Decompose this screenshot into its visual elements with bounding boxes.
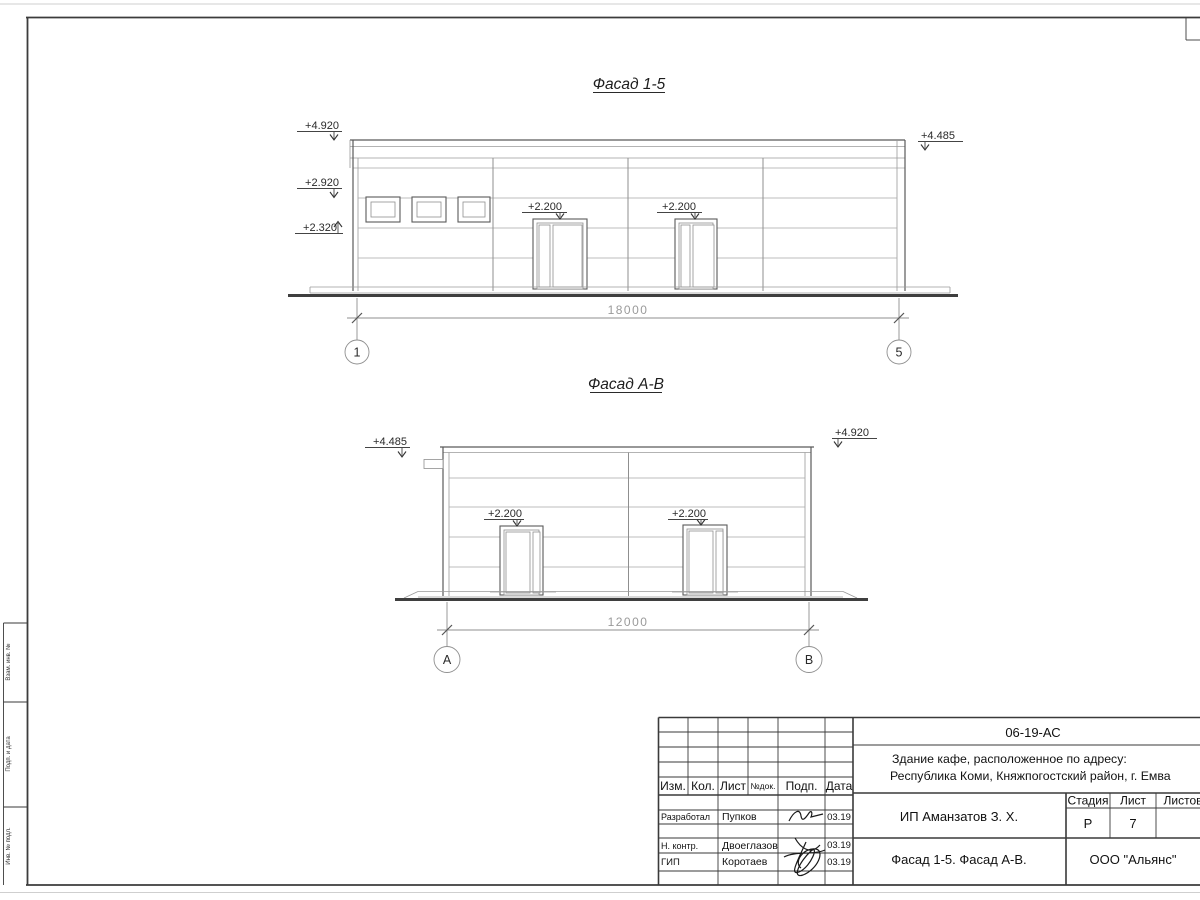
facade-a-b-title: Фасад А-В [588, 376, 664, 393]
dimension-label: 12000 [608, 615, 649, 629]
elevation-mark-2200-door1: +2.200 [522, 201, 567, 219]
client-name: ИП Аманзатов З. Х. [900, 809, 1018, 824]
window-1 [366, 197, 400, 222]
signature-2 [784, 838, 825, 876]
signer-date-3: 03.19 [827, 857, 851, 868]
rev-header-data: Дата [826, 779, 853, 793]
drawing-sheet: Взам. инв. № Подп. и дата Инв. № подл. Ф… [0, 0, 1200, 900]
elevation-label: +2.920 [305, 177, 339, 189]
elevation-label: +4.920 [835, 427, 869, 439]
elevation-label: +2.200 [672, 508, 706, 520]
elevation-mark-4920: +4.920 [832, 427, 877, 447]
title-block: Изм. Кол. Лист №док. Подп. Дата Разработ… [659, 718, 1200, 886]
elevation-mark-4485: +4.485 [365, 436, 410, 457]
window-2 [412, 197, 446, 222]
corner-stamp-cell [1186, 18, 1200, 40]
grid-label-1: 1 [354, 346, 361, 360]
signer-role-2: Н. контр. [661, 841, 698, 851]
elevation-label: +4.920 [305, 120, 339, 132]
signer-role-3: ГИП [661, 857, 680, 868]
rev-header-podp: Подп. [786, 779, 818, 793]
rev-header-kol: Кол. [691, 779, 715, 793]
side-strip: Взам. инв. № Подп. и дата Инв. № подл. [4, 623, 28, 885]
door-2 [675, 219, 717, 289]
door-1 [500, 526, 543, 595]
cad-canvas: Взам. инв. № Подп. и дата Инв. № подл. Ф… [0, 0, 1200, 900]
grid-label-5: 5 [896, 346, 903, 360]
stage-value: Р [1084, 816, 1093, 831]
facade-1-5-title: Фасад 1-5 [593, 76, 666, 93]
door-2 [683, 525, 727, 595]
elevation-mark-2200-door2: +2.200 [657, 201, 702, 219]
dimension-label: 18000 [608, 303, 649, 317]
facade-a-b-drawing: Фасад А-В [365, 376, 877, 673]
door-1 [533, 219, 587, 289]
elevation-label: +4.485 [373, 436, 407, 448]
dimension-18000: 18000 [347, 298, 909, 340]
grid-bubble-5: 5 [887, 340, 911, 364]
sheet-number: 7 [1129, 816, 1136, 831]
side-strip-label-2: Подп. и дата [6, 736, 12, 772]
project-address-line1: Здание кафе, расположенное по адресу: [892, 752, 1127, 766]
signer-name-2: Двоеглазов [722, 840, 778, 852]
rev-header-izm: Изм. [660, 779, 686, 793]
grid-bubble-b: В [796, 647, 822, 673]
elevation-label: +2.320 [303, 222, 337, 234]
elevation-mark-2200-door1: +2.200 [484, 508, 524, 526]
sheet-label: Лист [1120, 794, 1147, 808]
grid-bubble-a: А [434, 647, 460, 673]
elevation-label: +4.485 [921, 130, 955, 142]
elevation-mark-4485: +4.485 [918, 130, 963, 150]
grid-label-a: А [443, 653, 452, 667]
elevation-mark-4920: +4.920 [297, 120, 342, 140]
side-strip-label-1: Взам. инв. № [5, 643, 12, 680]
signer-name-1: Пупков [722, 811, 757, 823]
elevation-label: +2.200 [528, 201, 562, 213]
company-name: ООО "Альянс" [1090, 852, 1177, 867]
elevation-label: +2.200 [488, 508, 522, 520]
project-address-line2: Республика Коми, Княжпогостский район, г… [890, 769, 1171, 783]
grid-label-b: В [805, 653, 813, 667]
elevation-mark-2920: +2.920 [297, 177, 342, 198]
facade-1-5-drawing: Фасад 1-5 [288, 76, 963, 364]
elevation-mark-2200-door2: +2.200 [668, 508, 708, 525]
stage-label: Стадия [1068, 794, 1109, 808]
signature-1 [789, 811, 823, 821]
rev-header-list: Лист [720, 779, 747, 793]
sheets-label: Листов [1164, 794, 1200, 808]
signer-date-1: 03.19 [827, 812, 851, 823]
elevation-mark-2320: +2.320 [295, 222, 343, 235]
signer-name-3: Коротаев [722, 856, 768, 868]
doc-number: 06-19-АС [1005, 725, 1060, 740]
grid-bubble-1: 1 [345, 340, 369, 364]
elevation-label: +2.200 [662, 201, 696, 213]
side-strip-label-3: Инв. № подл. [5, 827, 12, 865]
signer-date-2: 03.19 [827, 840, 851, 851]
wall-protrusion [424, 460, 443, 469]
drawing-title: Фасад 1-5. Фасад А-В. [891, 852, 1026, 867]
window-3 [458, 197, 490, 222]
rev-header-ndoc: №док. [751, 781, 776, 791]
signer-role-1: Разработал [661, 812, 710, 822]
dimension-12000: 12000 [437, 602, 819, 647]
